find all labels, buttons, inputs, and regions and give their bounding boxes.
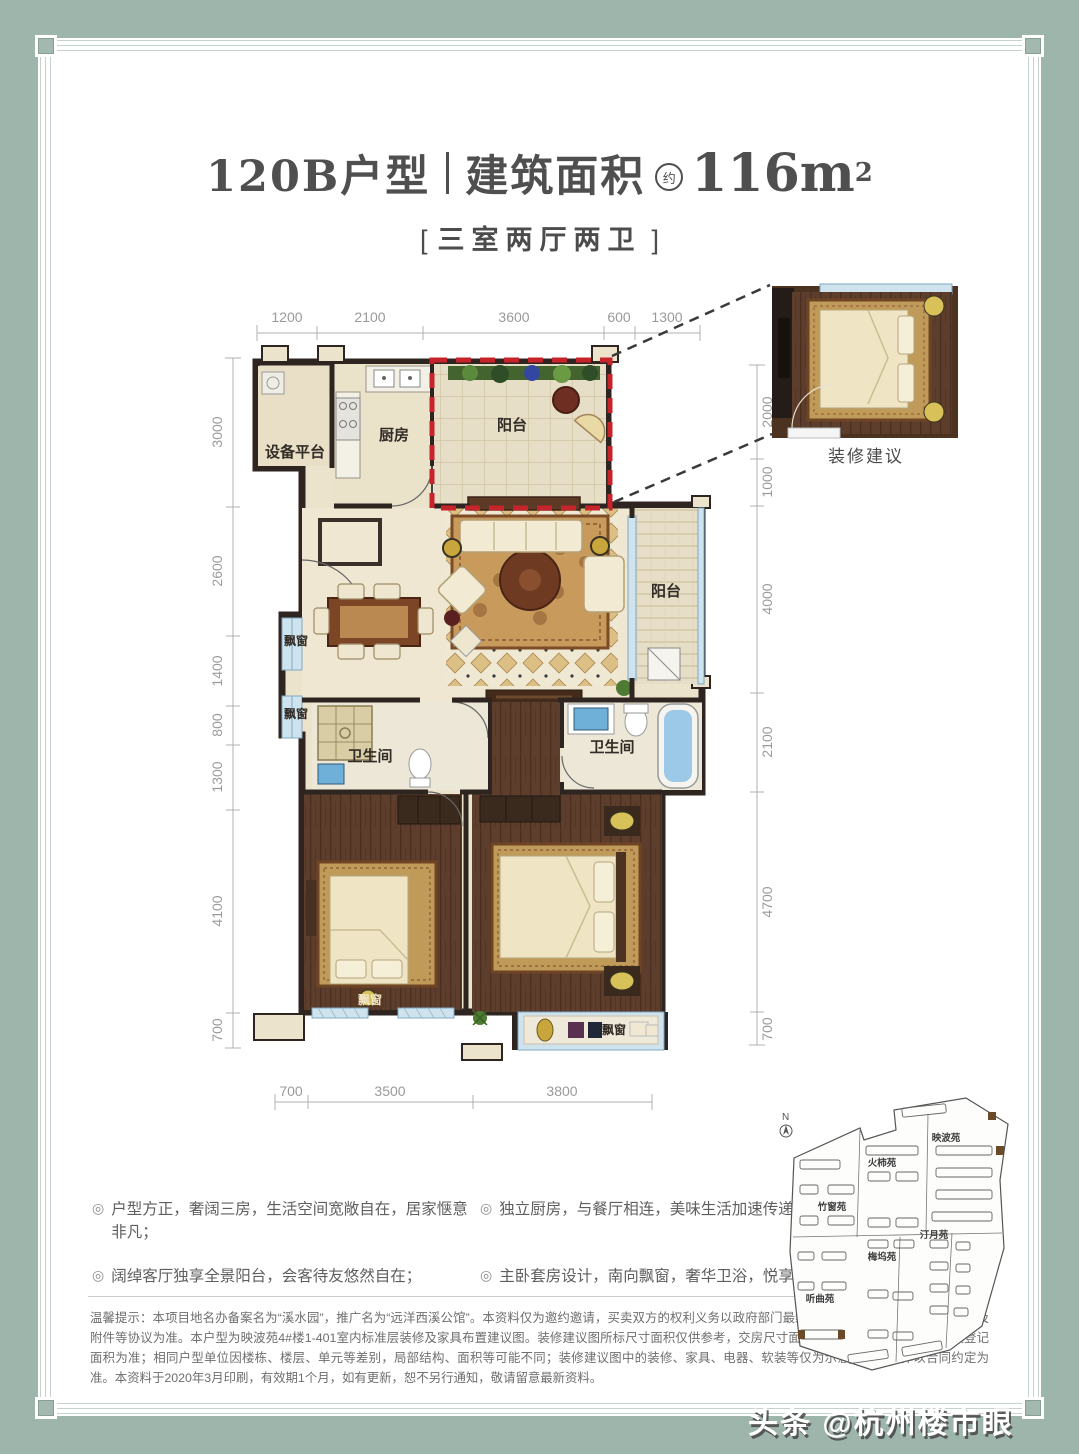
layout-subtitle: [三室两厅两卫] [0, 218, 1079, 257]
feature-text: 阔绰客厅独享全景阳台，会客待友悠然自在； [111, 1265, 421, 1288]
dim-top-0: 1200 [271, 309, 302, 325]
dimension-chain-left [225, 358, 241, 1048]
bracket-right: ] [652, 225, 660, 255]
bedroom-left-room [304, 794, 462, 1010]
dim-bottom-2: 3800 [546, 1083, 577, 1099]
dim-right-4: 4700 [759, 886, 775, 917]
room-count-text: 三室两厅两卫 [438, 225, 642, 255]
decor-suggestion-inset: 装修建议 [772, 284, 958, 466]
approx-circle-badge: 约 [655, 163, 683, 191]
room-label-bay-window-2: 飘窗 [284, 706, 308, 721]
brochure-page: 120B户型 建筑面积 约 116m 2 [三室两厅两卫] [0, 0, 1079, 1454]
bullet-marker-icon: ◎ [480, 1265, 492, 1286]
feature-text: 户型方正，奢阔三房，生活空间宽敞自在，居家惬意非凡； [111, 1198, 480, 1245]
dim-right-3: 2100 [759, 726, 775, 757]
dim-bottom-1: 3500 [374, 1083, 405, 1099]
room-label-bay-window-1: 飘窗 [284, 633, 308, 648]
room-label-bathroom-right: 卫生间 [589, 738, 634, 756]
district-label-zhuchuang: 竹窗苑 [817, 1201, 847, 1213]
dim-top-2: 3600 [498, 309, 529, 325]
corner-ornament-top-right [1025, 38, 1041, 54]
district-label-yingbo: 映波苑 [932, 1132, 961, 1144]
site-plan-map: N 映波苑 火柿苑 竹窗苑 汀月苑 梅坞苑 听曲苑 [765, 1095, 1020, 1395]
district-label-meiwu: 梅坞苑 [868, 1251, 897, 1263]
room-label-balcony-top: 阳台 [497, 416, 527, 434]
room-label-bathroom-left: 卫生间 [347, 747, 392, 765]
dim-left-4: 1300 [209, 761, 225, 792]
inset-connector-lines [612, 285, 772, 502]
dimension-chain-bottom [275, 1094, 652, 1110]
dimension-chain-top [257, 325, 700, 341]
title-divider [446, 152, 449, 194]
living-dining-room [302, 497, 632, 704]
dim-top-4: 1300 [651, 309, 682, 325]
dim-left-3: 800 [209, 713, 225, 737]
dim-top-1: 2100 [354, 309, 385, 325]
bracket-left: [ [420, 225, 428, 255]
north-indicator: N [780, 1112, 792, 1137]
dimension-labels-right: 2000 1000 4000 2100 4700 700 [759, 396, 775, 1040]
corner-ornament-bottom-left [38, 1400, 54, 1416]
dim-top-3: 600 [607, 309, 631, 325]
room-label-balcony-right: 阳台 [651, 582, 681, 600]
bullet-marker-icon: ◎ [480, 1198, 492, 1219]
north-label: N [782, 1112, 789, 1123]
page-title: 120B户型 建筑面积 约 116m 2 [0, 142, 1079, 204]
room-label-kitchen: 厨房 [379, 426, 409, 444]
district-label-huoshi: 火柿苑 [868, 1157, 897, 1169]
feature-item: ◎ 户型方正，奢阔三房，生活空间宽敞自在，居家惬意非凡； [92, 1198, 480, 1245]
dim-right-5: 700 [759, 1017, 775, 1041]
inset-caption: 装修建议 [828, 447, 904, 466]
dim-left-6: 700 [209, 1018, 225, 1042]
bathroom-left-room [312, 702, 490, 790]
room-label-bay-window-bottom-left: 飘窗 [358, 992, 382, 1007]
dimension-labels-left: 3000 2600 1400 800 1300 4100 700 [209, 416, 225, 1041]
dim-bottom-0: 700 [279, 1083, 303, 1099]
bullet-marker-icon: ◎ [92, 1198, 104, 1219]
balcony-right-room [616, 508, 704, 696]
dim-right-2: 4000 [759, 583, 775, 614]
district-label-tingqu: 听曲苑 [806, 1293, 835, 1305]
site-boundary [790, 1098, 1008, 1370]
unit-type-name: 120B户型 [206, 142, 430, 204]
bullet-marker-icon: ◎ [92, 1265, 104, 1286]
corner-ornament-bottom-right [1025, 1400, 1041, 1416]
room-label-bay-window-bottom: 飘窗 [602, 1022, 626, 1037]
area-value: 116m [691, 143, 855, 204]
dim-right-1: 1000 [759, 466, 775, 497]
room-label-equipment-platform: 设备平台 [265, 443, 325, 461]
dim-left-0: 3000 [209, 416, 225, 447]
bay-window-bottom-right [512, 1012, 668, 1050]
dimension-labels-bottom: 700 3500 3800 [279, 1083, 577, 1099]
dim-left-2: 1400 [209, 655, 225, 686]
district-label-tingyue: 汀月苑 [920, 1229, 949, 1241]
feature-item: ◎ 阔绰客厅独享全景阳台，会客待友悠然自在； [92, 1265, 480, 1288]
watermark-text: 头条 @杭州楼市眼 [748, 1398, 1014, 1442]
dim-left-1: 2600 [209, 555, 225, 586]
feature-item: ◎ 独立厨房，与餐厅相连，美味生活加速传递； [480, 1198, 809, 1245]
page-header: 120B户型 建筑面积 约 116m 2 [三室两厅两卫] [0, 142, 1079, 257]
corner-ornament-top-left [38, 38, 54, 54]
dim-left-5: 4100 [209, 895, 225, 926]
floor-plan: 1200 2100 3600 600 1300 3000 2600 1400 8… [200, 268, 1012, 1130]
balcony-top-room [434, 364, 612, 506]
area-label: 建筑面积 [465, 142, 645, 204]
dimension-labels-top: 1200 2100 3600 600 1300 [271, 309, 682, 325]
feature-text: 独立厨房，与餐厅相连，美味生活加速传递； [499, 1198, 809, 1221]
